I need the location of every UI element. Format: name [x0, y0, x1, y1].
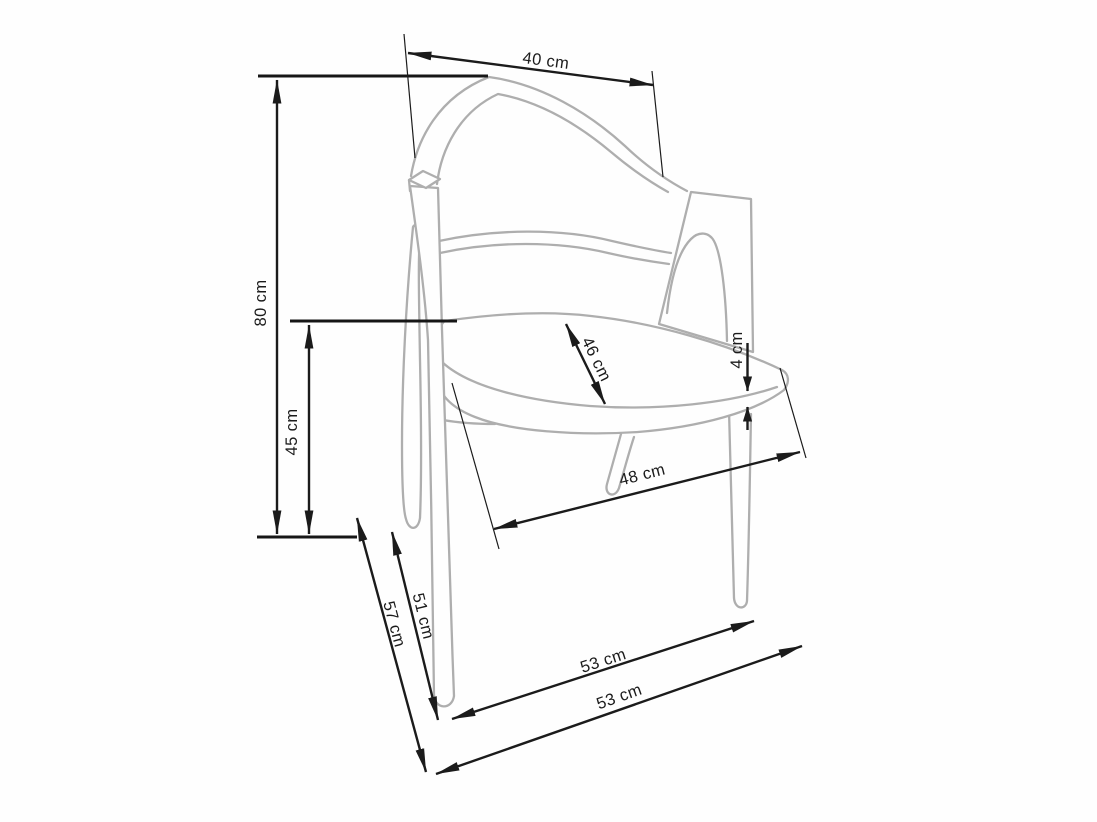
extension-line — [780, 368, 806, 458]
dimension-seat-height: 45 cm — [283, 325, 309, 534]
chair-right-support — [659, 192, 753, 352]
dimension-total-height: 80 cm — [252, 80, 277, 534]
dimension-leg-span-outer: 57 cm — [357, 518, 426, 772]
chair-drawing — [402, 77, 788, 706]
extension-line — [652, 71, 663, 177]
dim-label-seat-height: 45 cm — [283, 409, 301, 456]
dim-label-total-height: 80 cm — [252, 280, 270, 327]
chair-back-rail-upper — [439, 232, 671, 253]
dim-label-leg-span-outer: 57 cm — [379, 599, 409, 649]
dim-label-seat-thickness: 4 cm — [728, 331, 746, 368]
dim-label-base-span-outer: 53 cm — [594, 681, 644, 714]
chair-dimension-diagram: 40 cm 80 cm 45 cm 46 cm 4 cm 48 cm — [0, 0, 1097, 822]
chair-backrest-arch-outer — [411, 77, 687, 191]
diagram-canvas: 40 cm 80 cm 45 cm 46 cm 4 cm 48 cm — [0, 0, 1097, 822]
chair-far-leg-loop — [402, 225, 421, 528]
dim-label-base-span-inner: 53 cm — [578, 645, 628, 677]
chair-left-leg-cap-facet — [409, 180, 410, 191]
chair-right-leg — [729, 410, 751, 607]
chair-backrest-arch-inner — [437, 94, 668, 192]
